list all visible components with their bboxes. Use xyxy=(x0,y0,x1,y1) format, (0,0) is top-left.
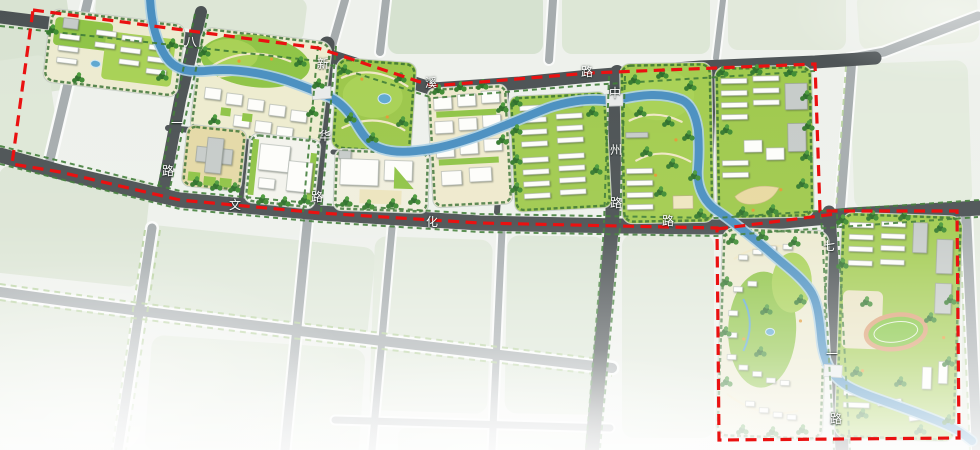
map-canvas xyxy=(0,0,980,450)
master-plan-map: 八 一 路 新 华 路 溪 路 中 州 路 文 化 路 七 一 路 xyxy=(0,0,980,450)
fade-overlays xyxy=(0,0,980,450)
